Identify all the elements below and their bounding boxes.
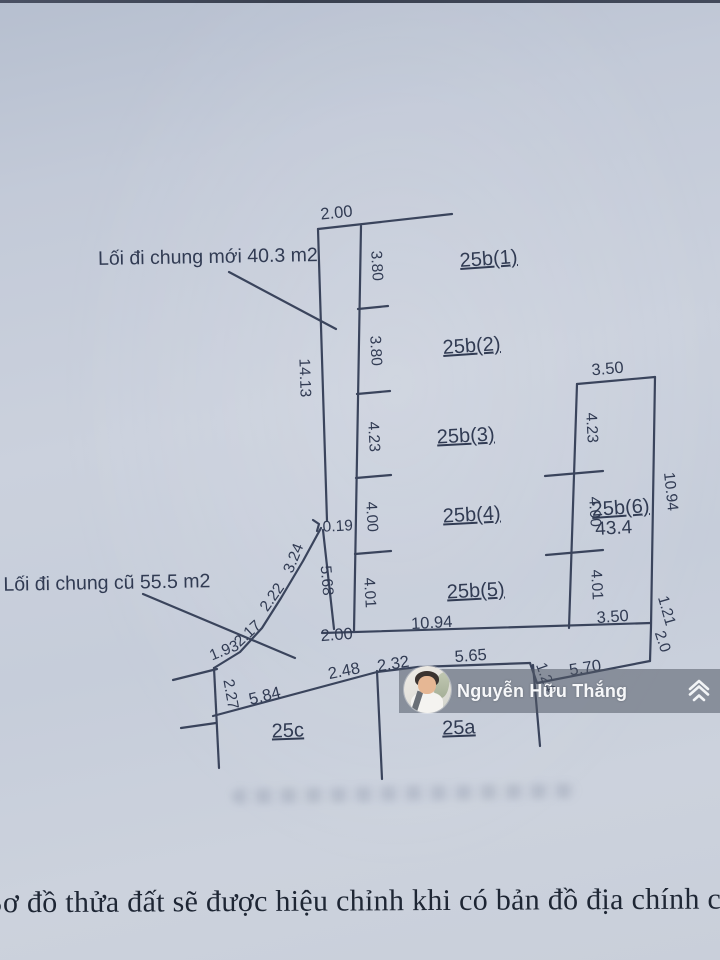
diamond-chevrons-icon: [685, 677, 713, 705]
watermark-bar: Nguyễn Hữu Thắng: [399, 669, 720, 713]
measurement-label: 4.23: [364, 421, 383, 452]
avatar-face: [418, 676, 436, 694]
measurement-label: 10.94: [411, 613, 453, 633]
measurement-label: 2.22: [257, 580, 288, 614]
top-right-boundary-line: [577, 377, 655, 384]
tick: [358, 306, 388, 309]
measurement-label: 3.50: [596, 607, 629, 627]
plot-label-25b4: 25b(4): [442, 503, 501, 528]
tick: [355, 551, 391, 554]
plot-label-25b1: 25b(1): [459, 246, 518, 272]
jog-tick: [313, 520, 319, 531]
tick: [546, 550, 603, 555]
plot-area-25b6: 43.4: [595, 517, 633, 540]
measurement-label: 2.0: [651, 629, 674, 655]
measurement-label: 2.00: [320, 202, 354, 223]
measurement-label: 4.23: [582, 412, 601, 443]
plot-25c-left-line: [214, 668, 219, 768]
right-boundary-line: [650, 377, 655, 661]
measurement-label: 2.00: [320, 625, 353, 645]
plot-label-25b5: 25b(5): [446, 579, 505, 604]
plot-25c-25a-divider-line: [377, 671, 382, 779]
new-path-annotation: Lối đi chung mới 40.3 m2: [98, 244, 318, 270]
cadastral-plan-drawing: Lối đi chung mới 40.3 m2 Lối đi chung cũ…: [0, 0, 720, 960]
mid-divider-line: [569, 384, 577, 628]
measurement-label: 10.94: [660, 471, 681, 512]
tick: [181, 723, 216, 728]
plot-label-25a: 25a: [442, 716, 477, 739]
corridor-left-line: [318, 229, 327, 521]
tick: [357, 391, 390, 394]
measurement-label: 2.27: [219, 678, 241, 711]
measurement-label: 3.50: [591, 359, 625, 380]
measurement-label: 3.80: [367, 250, 386, 281]
plot-label-25b3: 25b(3): [436, 424, 495, 449]
road-left-line: [173, 669, 217, 680]
plot-label-25c: 25c: [271, 719, 304, 742]
measurement-label: 1.21: [654, 594, 679, 628]
avatar: [404, 666, 451, 713]
plot-label-25b2: 25b(2): [442, 333, 501, 359]
old-path-annotation: Lối đi chung cũ 55.5 m2: [3, 570, 210, 596]
measurement-label: 1.93: [207, 637, 241, 664]
measurement-label: 4.01: [360, 577, 379, 608]
tick: [356, 475, 391, 478]
measurement-label: 5.68: [317, 565, 337, 597]
measurement-label: 5.65: [454, 646, 487, 666]
document-caption: Sơ đồ thửa đất sẽ được hiệu chỉnh khi có…: [0, 882, 720, 921]
measurement-label: 2.48: [327, 659, 362, 683]
measurement-label: 4.00: [362, 501, 381, 532]
corridor-right-line: [354, 226, 361, 631]
measurement-label: 0.19: [322, 517, 353, 536]
measurement-label: 4.01: [587, 569, 606, 600]
measurement-label: 3.80: [366, 335, 385, 366]
measurement-label: 5.84: [247, 684, 283, 709]
watermark-username: Nguyễn Hữu Thắng: [457, 681, 627, 702]
measurement-label: 14.13: [295, 358, 313, 397]
